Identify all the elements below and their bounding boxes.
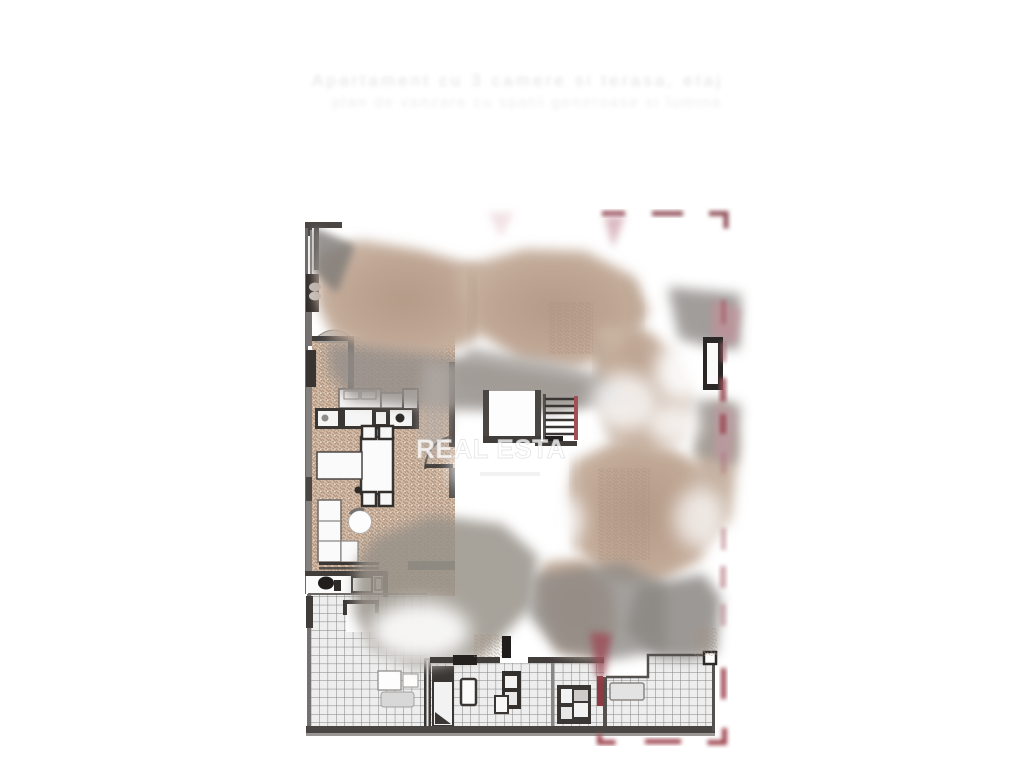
svg-text:REAL ESTA: REAL ESTA bbox=[416, 434, 566, 464]
svg-text:Apartament cu 3 camere si tera: Apartament cu 3 camere si terasa, etaj bbox=[312, 71, 720, 90]
svg-text:plan de vanzare cu spatii gene: plan de vanzare cu spatii generoase si l… bbox=[332, 94, 721, 111]
